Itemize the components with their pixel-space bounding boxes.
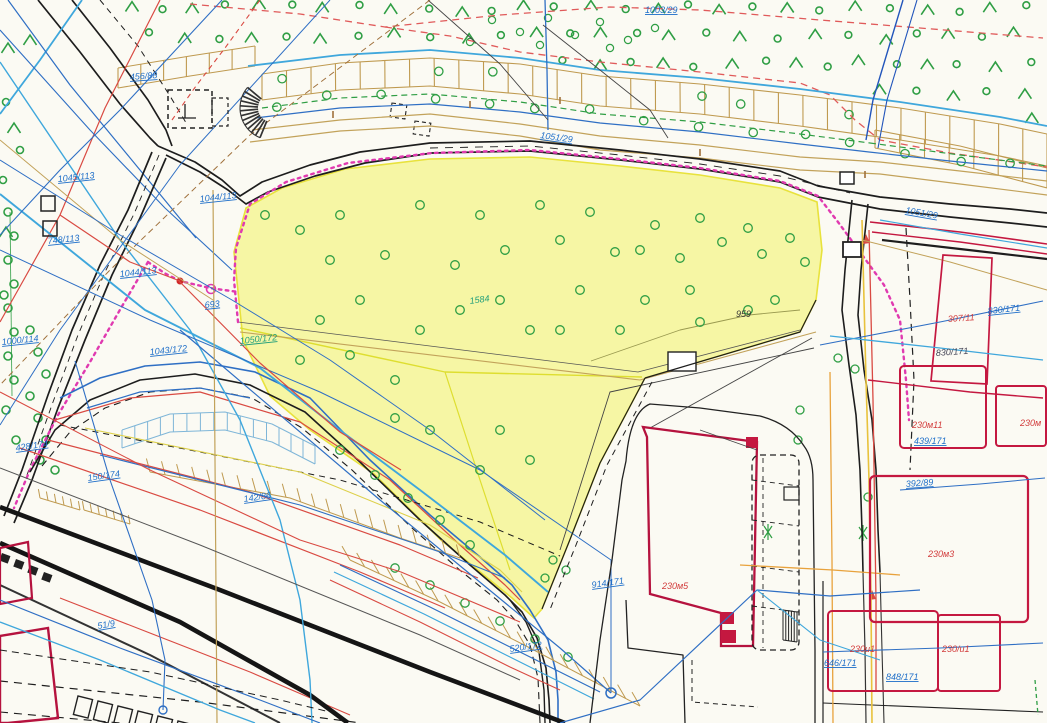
svg-text:848/171: 848/171	[886, 672, 919, 682]
svg-text:230м11: 230м11	[911, 420, 943, 430]
svg-text:230и1: 230и1	[849, 644, 875, 654]
svg-text:693: 693	[204, 298, 220, 310]
svg-text:230м: 230м	[1019, 418, 1041, 428]
svg-text:392/89: 392/89	[905, 477, 933, 489]
svg-text:959: 959	[736, 309, 751, 319]
svg-text:230м5: 230м5	[661, 581, 689, 591]
svg-text:307/11: 307/11	[947, 312, 974, 324]
svg-text:439/171: 439/171	[914, 436, 947, 446]
svg-text:646/171: 646/171	[824, 658, 857, 668]
svg-text:230/и1: 230/и1	[941, 644, 970, 654]
svg-text:1003/29: 1003/29	[645, 5, 678, 15]
svg-text:230м3: 230м3	[927, 549, 954, 559]
svg-text:456/88: 456/88	[129, 70, 157, 82]
